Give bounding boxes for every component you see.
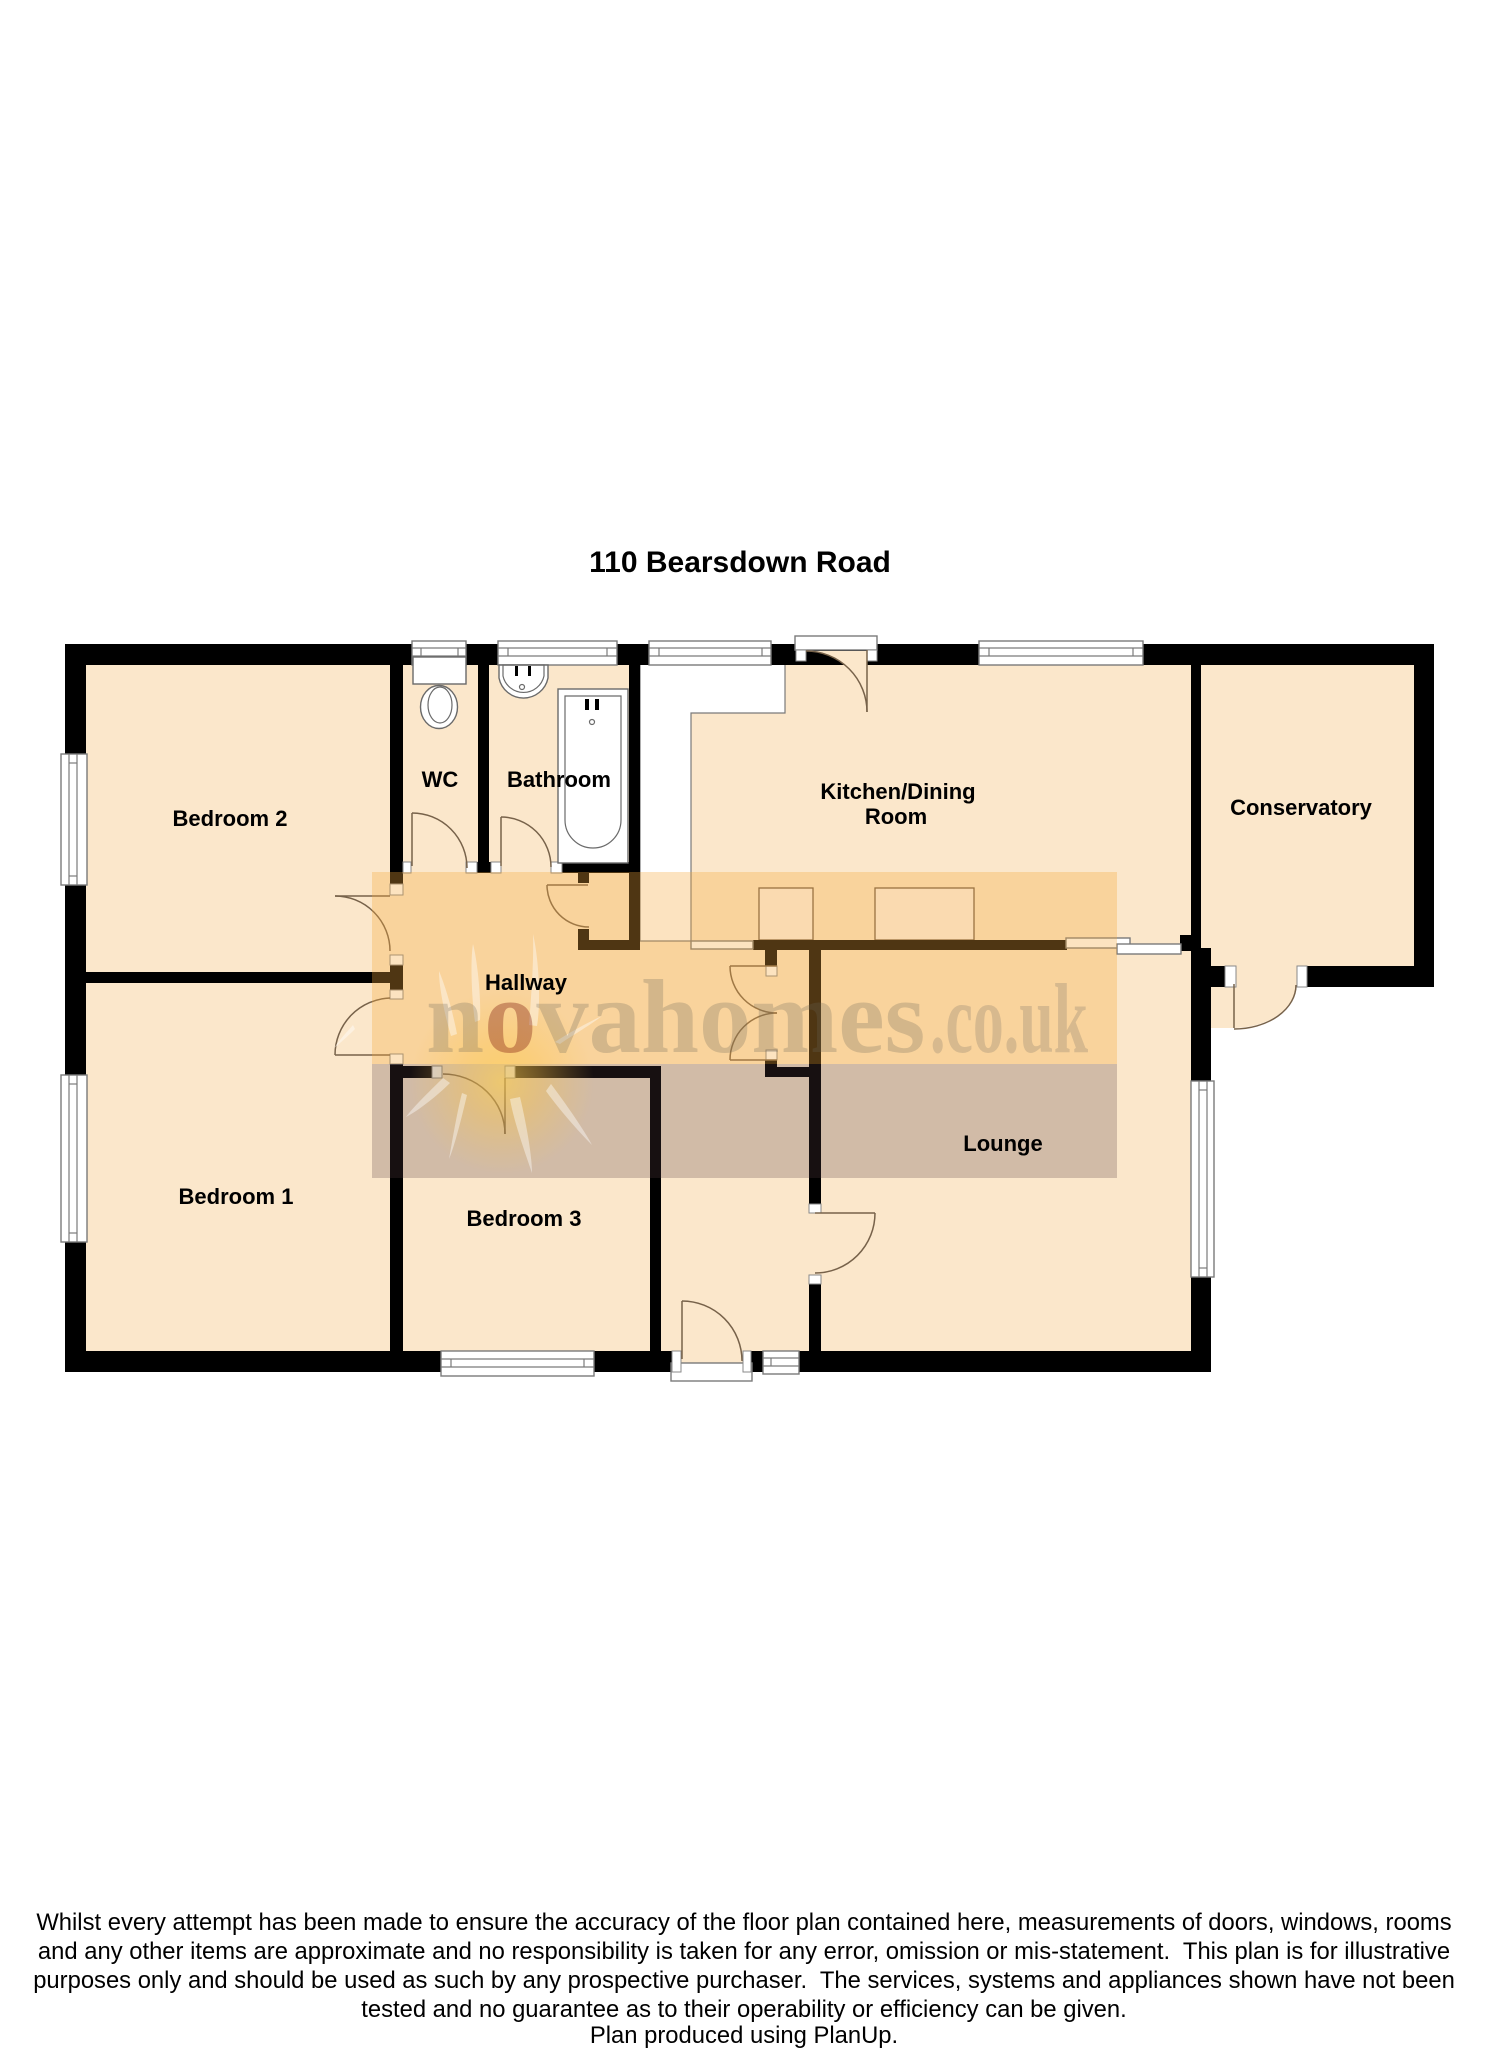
svg-text:Hallway: Hallway — [485, 970, 568, 995]
svg-text:Bedroom 3: Bedroom 3 — [467, 1206, 582, 1231]
svg-text:Conservatory: Conservatory — [1230, 795, 1373, 820]
svg-text:Bedroom 1: Bedroom 1 — [179, 1184, 294, 1209]
svg-text:Plan produced using PlanUp.: Plan produced using PlanUp. — [590, 2022, 898, 2048]
svg-text:Room: Room — [865, 804, 927, 829]
svg-text:110 Bearsdown Road: 110 Bearsdown Road — [589, 546, 891, 579]
svg-text:Bathroom: Bathroom — [507, 767, 611, 792]
svg-text:purposes only and should be us: purposes only and should be used as such… — [33, 1967, 1455, 1994]
svg-text:and any other items are approx: and any other items are approximate and … — [38, 1938, 1450, 1965]
svg-text:Kitchen/Dining: Kitchen/Dining — [820, 779, 975, 804]
svg-text:Whilst every attempt has been: Whilst every attempt has been made to en… — [36, 1909, 1451, 1936]
svg-text:Lounge: Lounge — [963, 1131, 1042, 1156]
svg-text:.co.uk: .co.uk — [930, 963, 1088, 1074]
svg-text:tested and no guarantee as to: tested and no guarantee as to their oper… — [361, 1996, 1127, 2023]
svg-text:WC: WC — [422, 767, 459, 792]
svg-text:Bedroom 2: Bedroom 2 — [173, 806, 288, 831]
